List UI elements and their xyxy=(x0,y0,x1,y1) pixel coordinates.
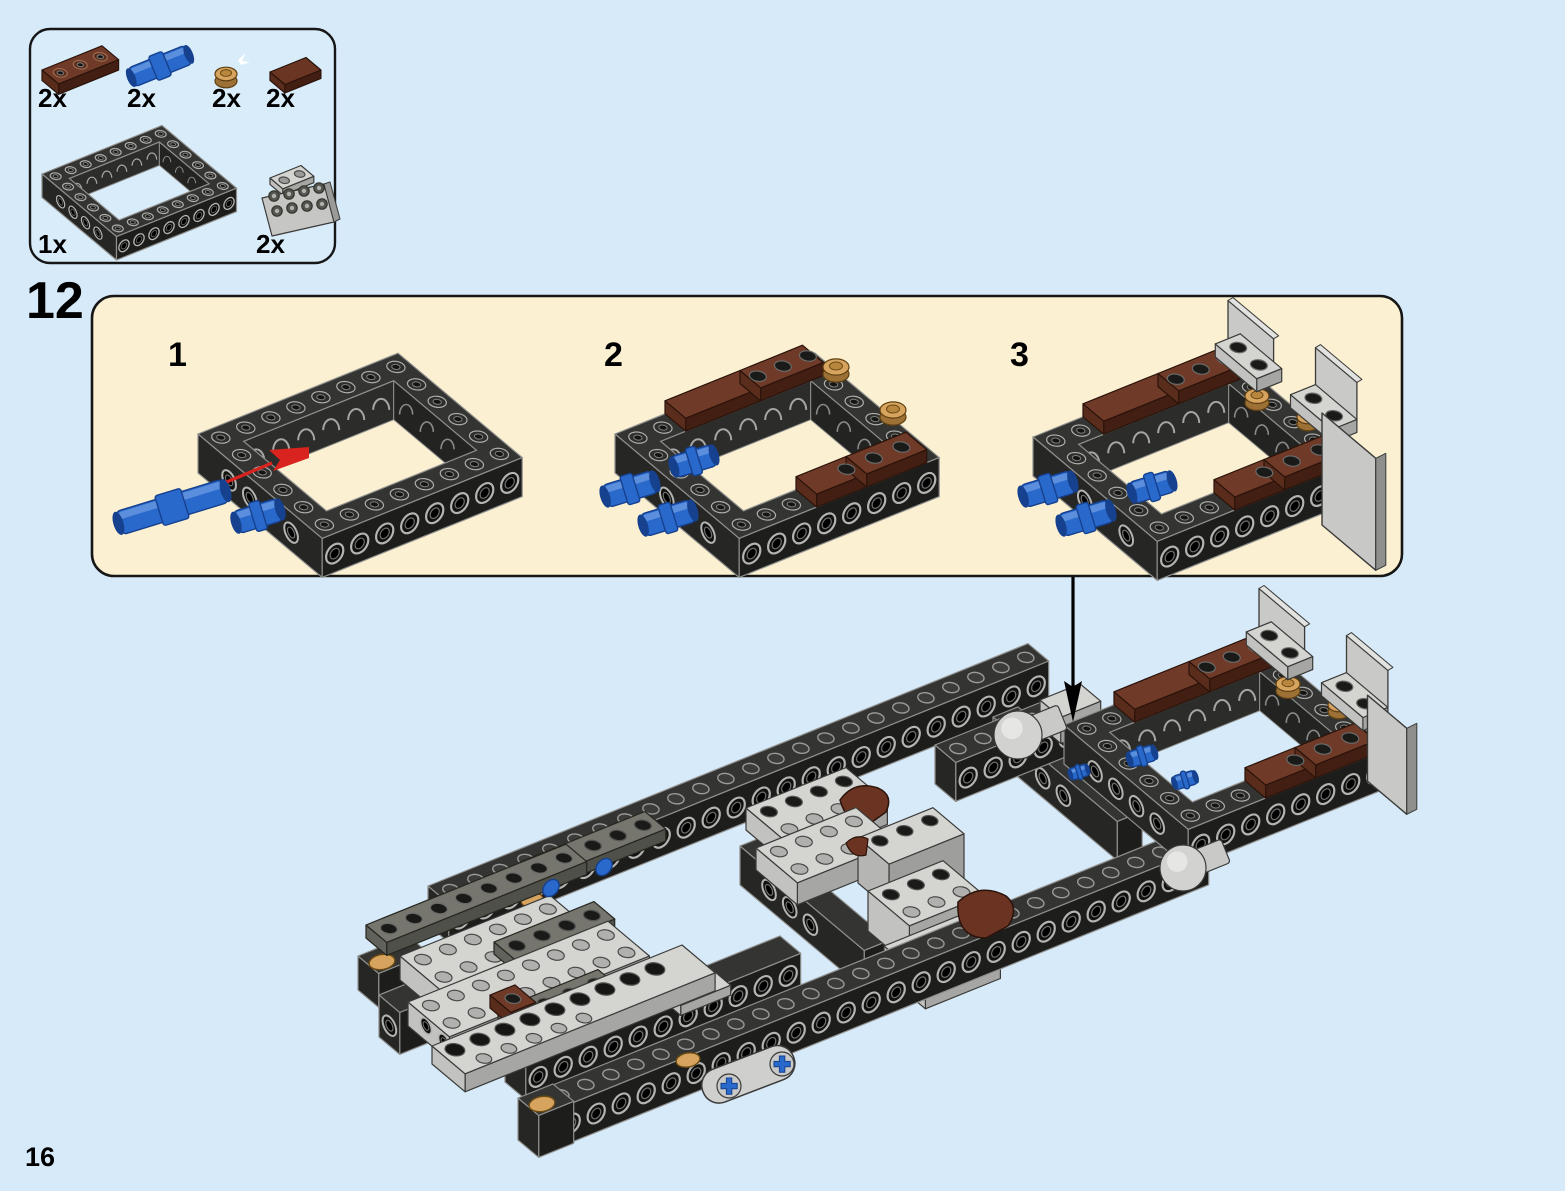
svg-text:16: 16 xyxy=(25,1142,55,1172)
svg-text:2x: 2x xyxy=(127,83,156,113)
svg-text:3: 3 xyxy=(1010,336,1029,374)
svg-text:2x: 2x xyxy=(256,229,285,259)
svg-text:2x: 2x xyxy=(212,83,241,113)
svg-text:2x: 2x xyxy=(266,83,295,113)
svg-text:2x: 2x xyxy=(38,83,67,113)
svg-text:1x: 1x xyxy=(38,229,67,259)
svg-text:12: 12 xyxy=(26,272,84,330)
svg-text:1: 1 xyxy=(168,336,187,374)
svg-text:2: 2 xyxy=(604,336,623,374)
